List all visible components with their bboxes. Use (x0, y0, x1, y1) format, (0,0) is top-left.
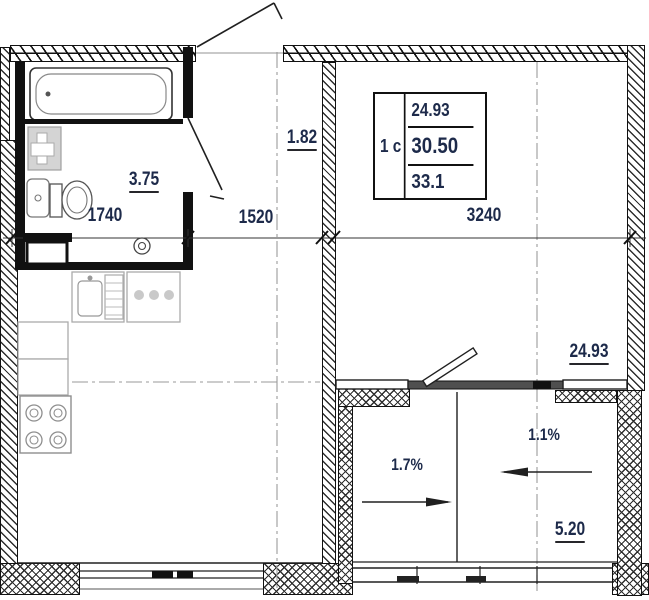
bathtub (25, 68, 183, 124)
slope-right-label: 1.1% (524, 426, 563, 444)
balcony-glazing (353, 566, 612, 584)
balcony-window (336, 380, 627, 389)
hob-4-burner (20, 396, 71, 453)
slope-left-label: 1.7% (387, 456, 426, 474)
duct-shaft (23, 233, 72, 264)
hallway-area-value: 1.82 (287, 127, 317, 151)
plan-linework (0, 0, 649, 600)
unit-info-table: 1 с 24.93 30.50 33.1 (373, 92, 487, 200)
slope-arrow-left (362, 498, 452, 507)
entrance-door-swing (196, 3, 283, 53)
kitchen-sink-unit (72, 272, 124, 322)
unit-type-cell: 1 с (377, 94, 405, 198)
stove-unit (127, 272, 180, 322)
kitchen-window (18, 563, 322, 589)
hallway-area-label: 1.82 (285, 128, 319, 148)
dimension-line (3, 229, 646, 247)
slope-arrow-right (500, 468, 592, 477)
living-area-value: 24.93 (569, 341, 608, 365)
balcony-area-value: 5.20 (555, 519, 585, 543)
washing-machine (28, 127, 61, 170)
kitchen-counter (18, 322, 68, 395)
bathroom-area-value: 3.75 (129, 169, 159, 193)
unit-living-area-cell: 24.93 (408, 94, 473, 128)
unit-total-area-cell: 30.50 (408, 128, 473, 166)
bathroom-door-swing (188, 118, 224, 199)
unit-overall-area-cell: 33.1 (408, 166, 473, 198)
living-area-label: 24.93 (564, 342, 615, 362)
floor-drain (134, 238, 150, 254)
dimension-bathroom-width: 1740 (83, 206, 127, 226)
dimension-living-width: 3240 (460, 206, 508, 226)
dimension-hallway-width: 1520 (233, 208, 279, 228)
floor-plan: 3.75 1.82 24.93 5.20 1740 1520 3240 1.7%… (0, 0, 649, 600)
unit-areas-column: 24.93 30.50 33.1 (408, 94, 485, 198)
balcony-area-label: 5.20 (550, 520, 589, 540)
bathroom-sink (27, 179, 49, 217)
bathroom-area-label: 3.75 (123, 170, 166, 190)
